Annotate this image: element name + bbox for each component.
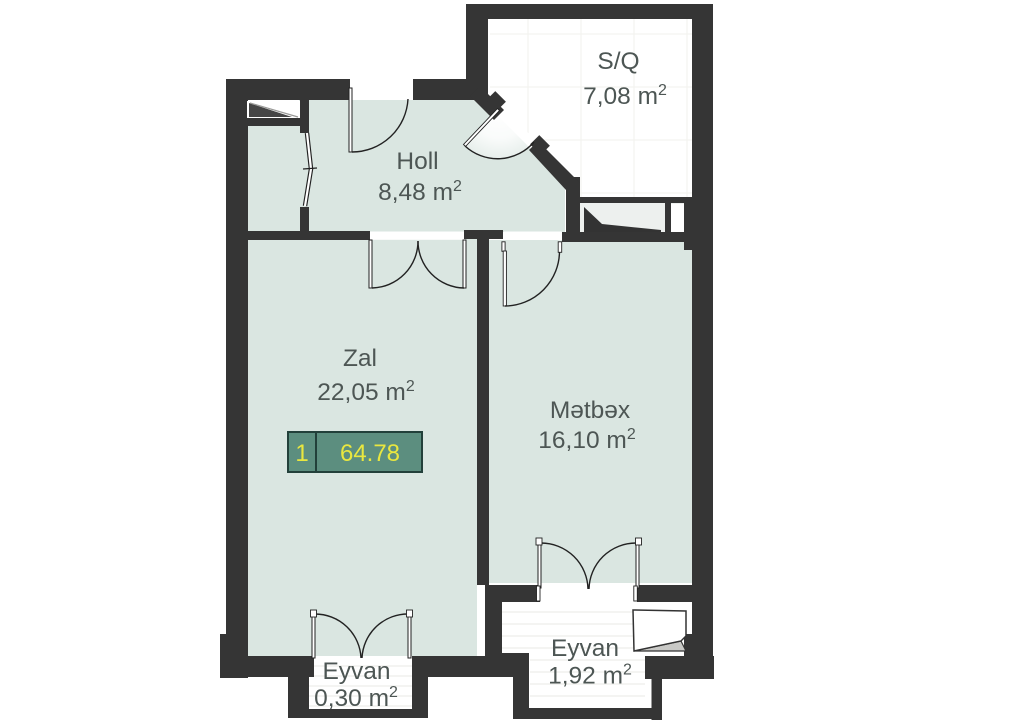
svg-text:8,48 m2: 8,48 m2 <box>378 178 462 206</box>
svg-text:Mətbəx: Mətbəx <box>550 397 630 424</box>
svg-text:S/Q: S/Q <box>597 48 639 75</box>
svg-text:1,92 m2: 1,92 m2 <box>548 662 632 690</box>
svg-text:16,10 m2: 16,10 m2 <box>538 426 636 454</box>
svg-text:1: 1 <box>295 440 308 467</box>
svg-text:Holl: Holl <box>396 148 438 175</box>
svg-text:0,30 m2: 0,30 m2 <box>314 684 398 712</box>
svg-text:64.78: 64.78 <box>340 440 400 467</box>
svg-text:Eyvan: Eyvan <box>551 635 619 662</box>
svg-text:7,08 m2: 7,08 m2 <box>583 82 667 110</box>
svg-text:22,05 m2: 22,05 m2 <box>317 378 415 406</box>
svg-text:Zal: Zal <box>343 345 377 372</box>
svg-text:Eyvan: Eyvan <box>322 658 390 685</box>
